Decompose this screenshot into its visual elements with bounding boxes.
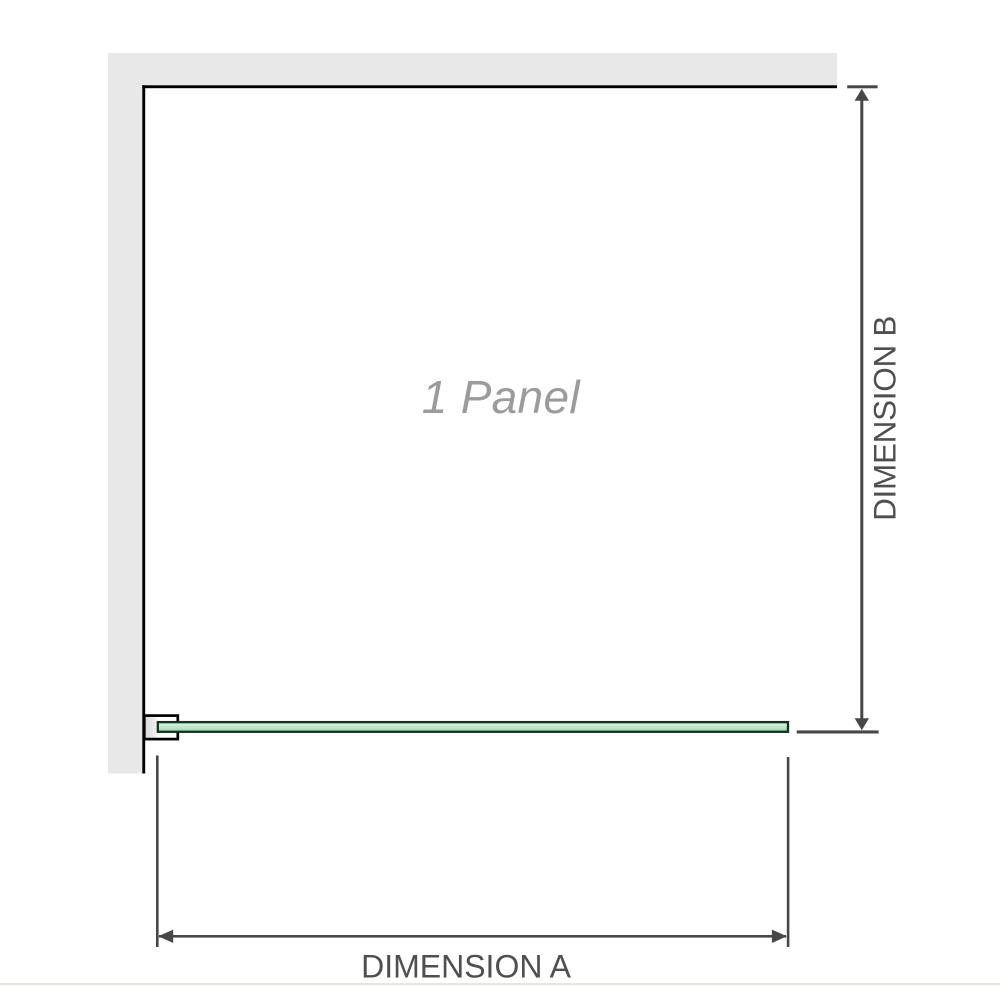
- svg-text:1 Panel: 1 Panel: [422, 371, 582, 423]
- svg-text:DIMENSION A: DIMENSION A: [361, 949, 571, 985]
- svg-text:DIMENSION B: DIMENSION B: [867, 316, 903, 521]
